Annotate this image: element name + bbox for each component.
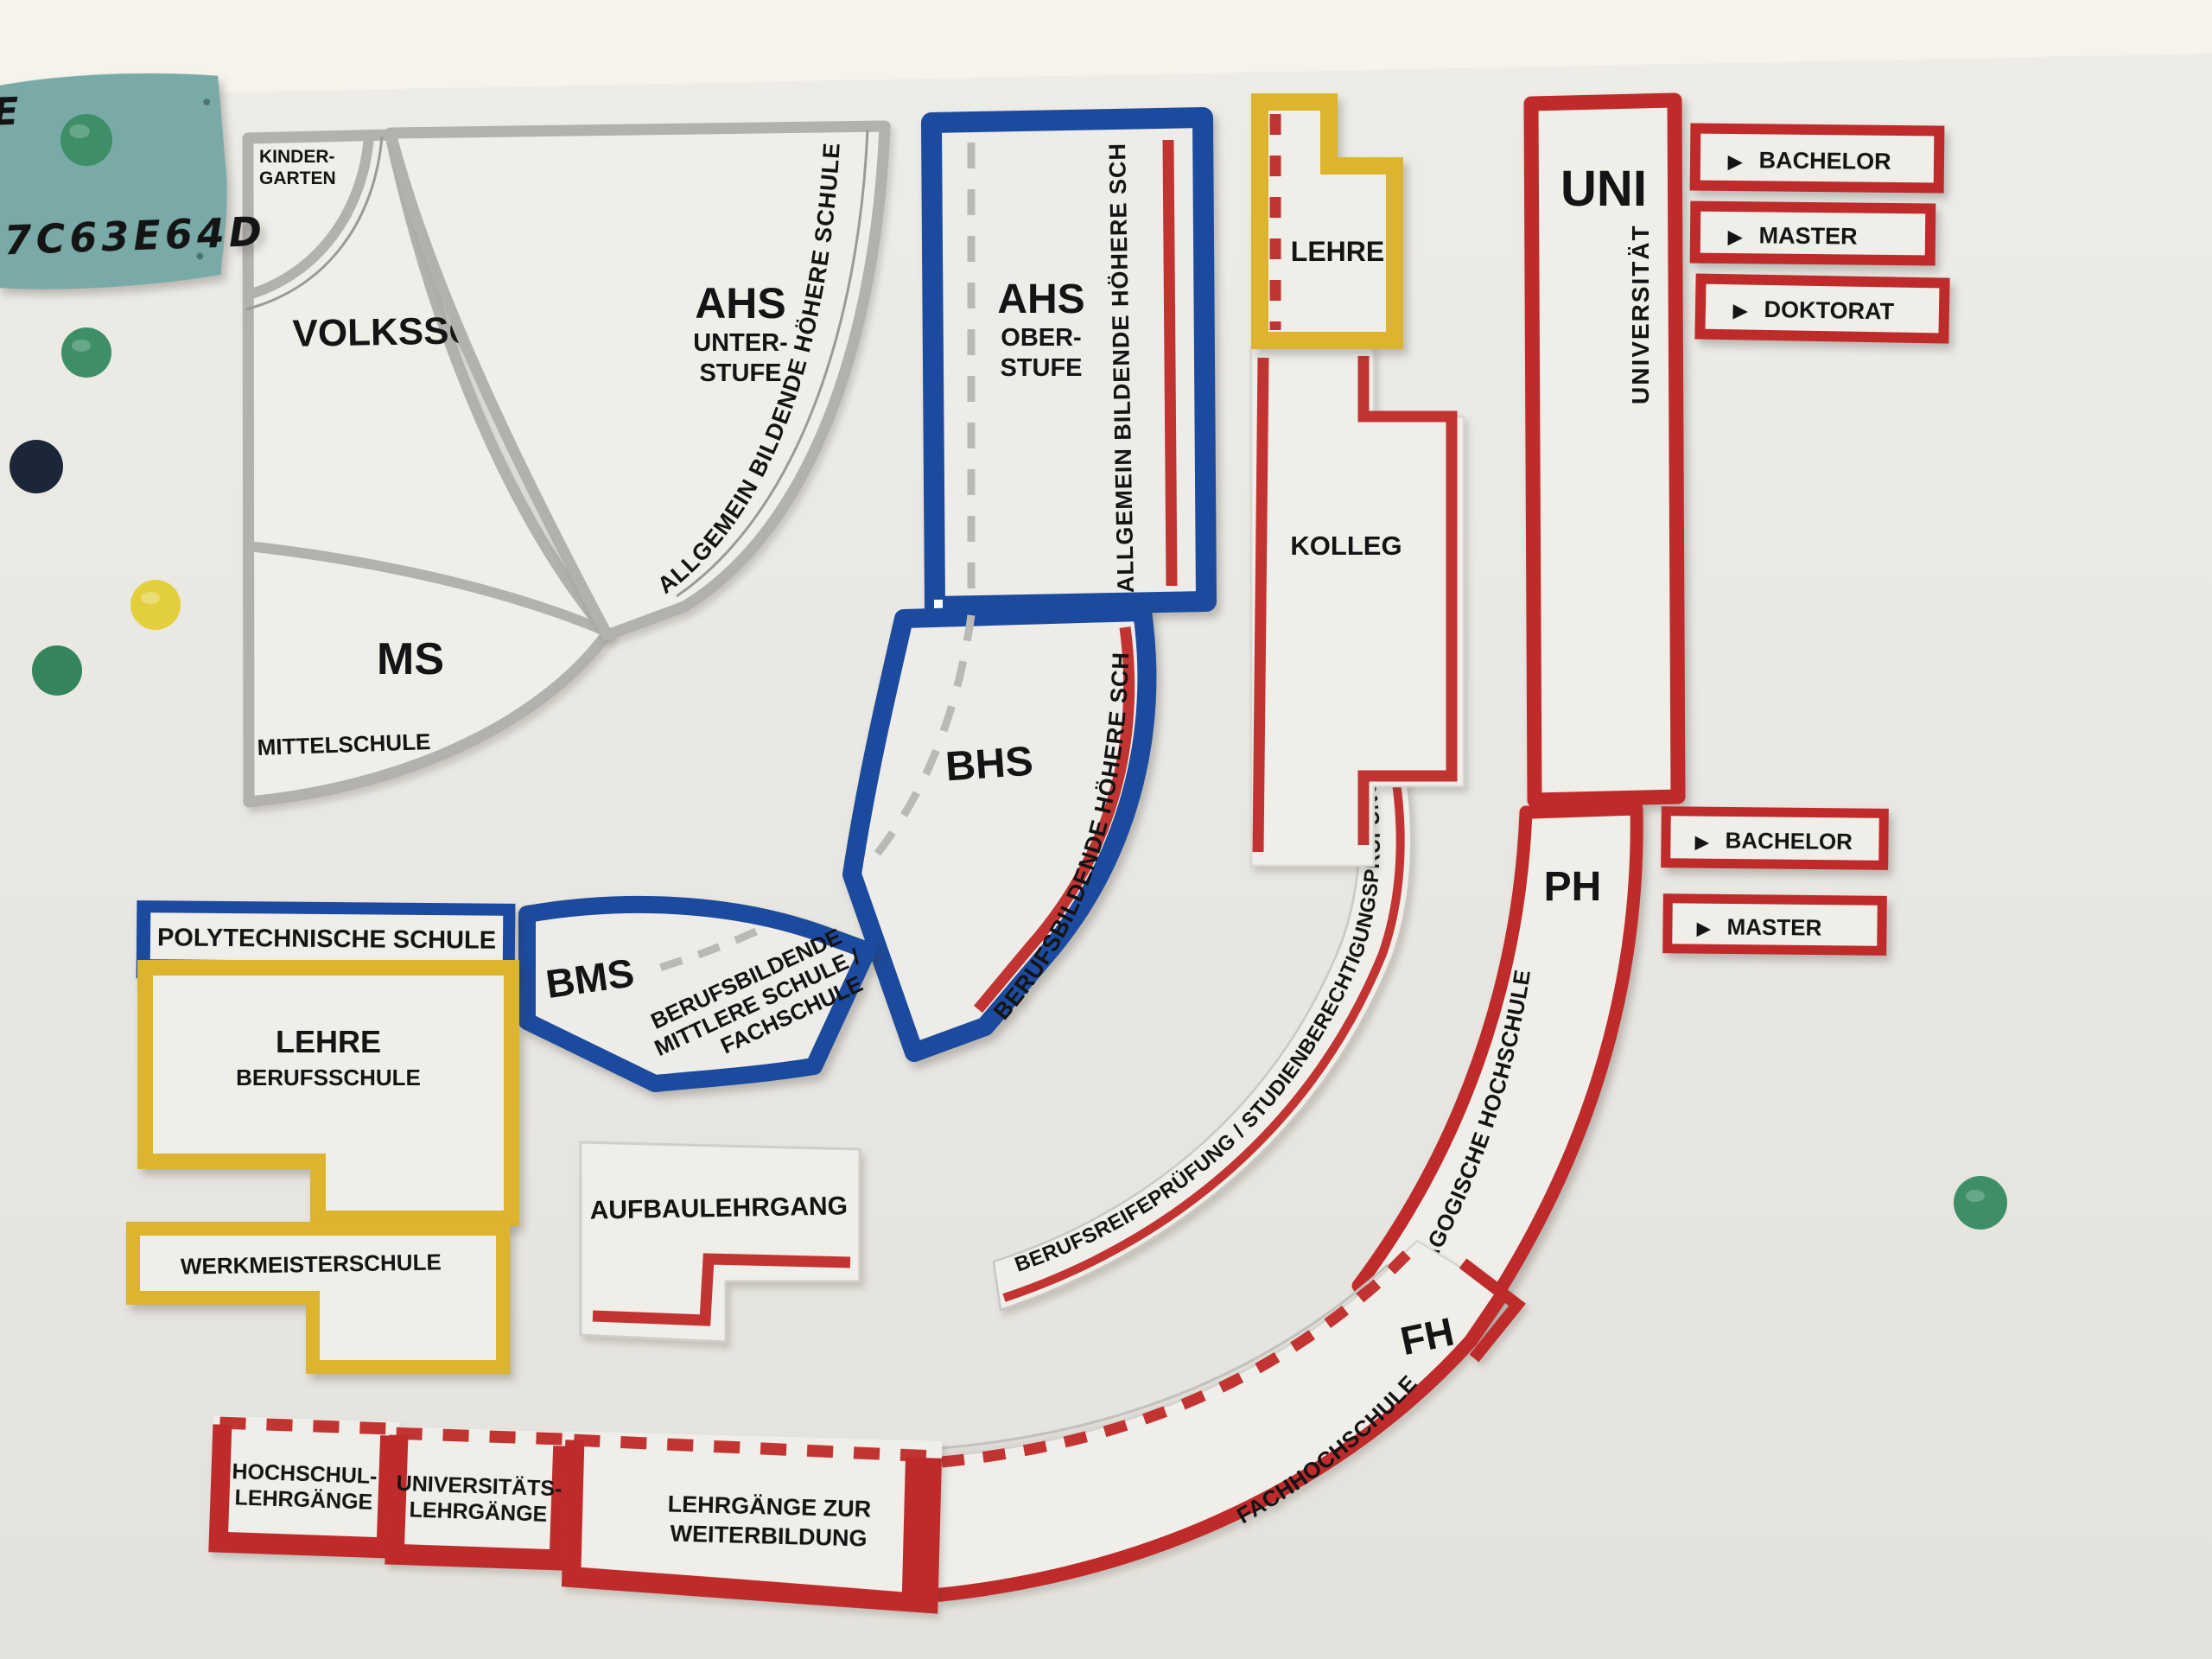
kindergarten-label: KINDER-	[259, 147, 335, 167]
magnet-green-2[interactable]	[32, 645, 82, 696]
arrow-icon: ▶	[1694, 833, 1710, 852]
lehrgaenge-weiterbildung-line2: WEITERBILDUNG	[670, 1521, 868, 1552]
ahs-oberstufe-abbr: AHS	[997, 276, 1084, 322]
degree-label-doktorat-uni[interactable]: ▶ DOKTORAT	[1700, 279, 1944, 339]
arrow-icon: ▶	[1727, 227, 1743, 247]
uni-abbr: UNI	[1560, 161, 1647, 217]
aufbaulehrgang-label: AUFBAULEHRGANG	[589, 1192, 848, 1224]
arrow-icon: ▶	[1696, 919, 1712, 938]
ms-label: MS	[377, 634, 444, 684]
svg-text:▶ MASTER: ▶ MASTER	[1727, 222, 1858, 250]
ahs-unterstufe-line2: STUFE	[699, 359, 781, 387]
universitaetslehrgaenge-line2: LEHRGÄNGE	[409, 1497, 548, 1527]
arrow-icon: ▶	[1732, 301, 1748, 321]
degree-label-bachelor-ph[interactable]: ▶ BACHELOR	[1666, 811, 1885, 866]
piece-lehrgaenge-weiterbildung[interactable]: LEHRGÄNGE ZUR WEITERBILDUNG	[561, 1431, 942, 1613]
degree-label-text: MASTER	[1726, 913, 1821, 940]
hochschullehrgaenge-line1: HOCHSCHUL-	[232, 1459, 378, 1489]
lehrgaenge-weiterbildung-line1: LEHRGÄNGE ZUR	[667, 1491, 871, 1522]
degree-label-text: DOKTORAT	[1764, 296, 1894, 325]
degree-label-master-ph[interactable]: ▶ MASTER	[1668, 899, 1883, 951]
werkmeisterschule-label: WERKMEISTERSCHULE	[181, 1249, 442, 1279]
whiteboard-scene: KINDER- GARTEN VOLKSSCHULE MS MITTELSCHU…	[0, 0, 2212, 1659]
piece-hochschullehrgaenge[interactable]: HOCHSCHUL- LEHRGÄNGE	[208, 1415, 399, 1558]
polytechnische-schule-label: POLYTECHNISCHE SCHULE	[157, 924, 496, 954]
ahs-oberstufe-line2: STUFE	[1000, 354, 1082, 382]
degree-label-text: MASTER	[1758, 222, 1857, 249]
arrow-icon: ▶	[1727, 152, 1743, 172]
magnet-yellow[interactable]	[130, 580, 181, 630]
degree-label-master-uni[interactable]: ▶ MASTER	[1695, 207, 1931, 261]
degree-label-text: BACHELOR	[1759, 147, 1891, 175]
sticky-note-line1: E	[0, 90, 19, 135]
ahs-unterstufe-line1: UNTER-	[693, 329, 788, 357]
ahs-unterstufe-abbr: AHS	[695, 279, 786, 327]
magnet-green-note[interactable]	[60, 114, 112, 166]
bhs-abbr: BHS	[944, 739, 1035, 791]
lehre-label: LEHRE	[1291, 236, 1384, 267]
piece-uni[interactable]: UNI UNIVERSITÄT	[1531, 100, 1678, 800]
kolleg-label: KOLLEG	[1290, 531, 1402, 561]
magnet-navy[interactable]	[10, 440, 63, 493]
degree-label-bachelor-uni[interactable]: ▶ BACHELOR	[1695, 129, 1940, 188]
kindergarten-label2: GARTEN	[259, 168, 336, 188]
svg-text:▶ MASTER: ▶ MASTER	[1696, 913, 1822, 941]
piece-universitaetslehrgaenge[interactable]: UNIVERSITÄTS- LEHRGÄNGE	[385, 1426, 572, 1570]
ahs-oberstufe-line1: OBER-	[1001, 324, 1081, 352]
uni-full: UNIVERSITÄT	[1627, 224, 1654, 404]
ph-abbr: PH	[1544, 864, 1602, 910]
magnet-green-1[interactable]	[61, 327, 111, 378]
lehre-berufsschule-line2: BERUFSSCHULE	[236, 1065, 421, 1090]
lehre-berufsschule-line1: LEHRE	[276, 1024, 381, 1059]
hochschullehrgaenge-line2: LEHRGÄNGE	[234, 1485, 373, 1515]
magnet-green-right[interactable]	[1954, 1176, 2007, 1230]
degree-label-text: BACHELOR	[1725, 827, 1853, 855]
sticky-note-line2: 7C63E64D	[3, 208, 267, 264]
